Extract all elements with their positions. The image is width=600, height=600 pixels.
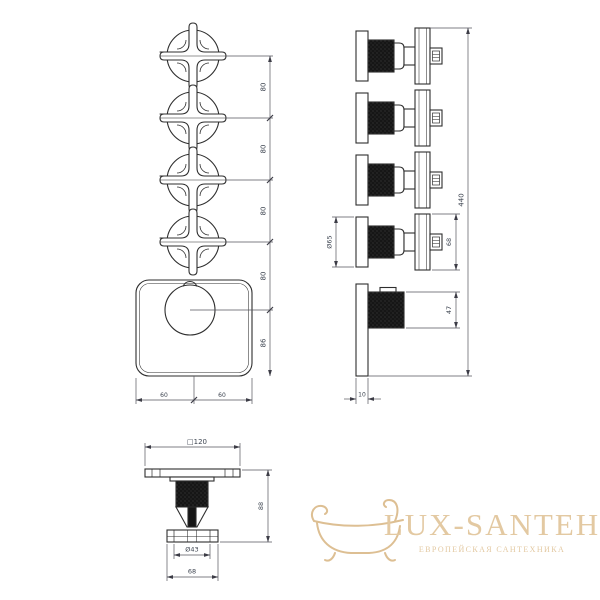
dim-label-half-width-right: 60 (218, 392, 226, 399)
dim-label-gap-1: 80 (260, 83, 268, 92)
dim-label-escutcheon-diameter: Ø65 (326, 235, 334, 248)
dim-label-plate-thickness: 10 (358, 392, 366, 399)
valve-side-profile (356, 152, 442, 208)
dim-label-total-height: 440 (458, 193, 466, 206)
front-width-dimension: 60 60 (136, 376, 252, 404)
brand-logo: LUX-SANTEH ЕВРОПЕЙСКАЯ САНТЕХНИКА (312, 500, 600, 561)
escutcheon-diameter-dimension: Ø65 (326, 217, 355, 267)
thermostat-profile (145, 469, 240, 542)
front-view: 80 80 80 80 86 60 60 (136, 23, 273, 404)
cross-handle-knob (160, 85, 226, 151)
thermostat-plate (136, 280, 252, 376)
cross-handle-knob (160, 147, 226, 213)
dim-label-cartridge-depth: 47 (445, 306, 453, 314)
cross-handle-knob (160, 209, 226, 275)
dim-label-handle-width: 68 (188, 568, 196, 576)
valve-side-profile (356, 214, 442, 270)
dim-label-gap-4: 80 (260, 272, 268, 281)
brand-tagline: ЕВРОПЕЙСКАЯ САНТЕХНИКА (419, 545, 565, 554)
dim-label-half-width-left: 60 (160, 392, 168, 399)
cross-handle-profile (167, 530, 218, 542)
front-spacing-dimension: 80 80 80 80 86 (260, 56, 274, 376)
cartridge-depth-dimension: 47 (406, 292, 460, 328)
cartridge-side-profile (356, 284, 404, 376)
knob-diameter-dimension: Ø43 (174, 544, 210, 559)
valve-side-profile (356, 90, 442, 146)
dim-label-knob-diameter: Ø43 (185, 546, 198, 554)
knurled-knob-profile (176, 481, 208, 507)
side-view: 440 Ø65 68 47 10 (326, 28, 473, 404)
plate-size-dimension: □120 (145, 438, 240, 466)
dim-label-plate-size: □120 (187, 438, 207, 446)
dim-label-total-depth: 88 (257, 502, 265, 510)
valve-side-profile (356, 28, 442, 84)
dim-label-handle-height: 68 (445, 238, 453, 246)
brand-name: LUX-SANTEH (384, 507, 600, 542)
cross-handle-knob (160, 23, 226, 89)
total-depth-dimension: 88 (220, 470, 272, 542)
dim-label-gap-3: 80 (260, 207, 268, 216)
technical-drawing-page: 80 80 80 80 86 60 60 (0, 0, 600, 600)
dimension-drawing: 80 80 80 80 86 60 60 (0, 0, 600, 600)
dim-label-gap-2: 80 (260, 145, 268, 154)
plate-thickness-dimension: 10 (344, 378, 381, 404)
dim-label-gap-5: 86 (260, 338, 268, 347)
bottom-view: □120 Ø43 (145, 438, 272, 581)
